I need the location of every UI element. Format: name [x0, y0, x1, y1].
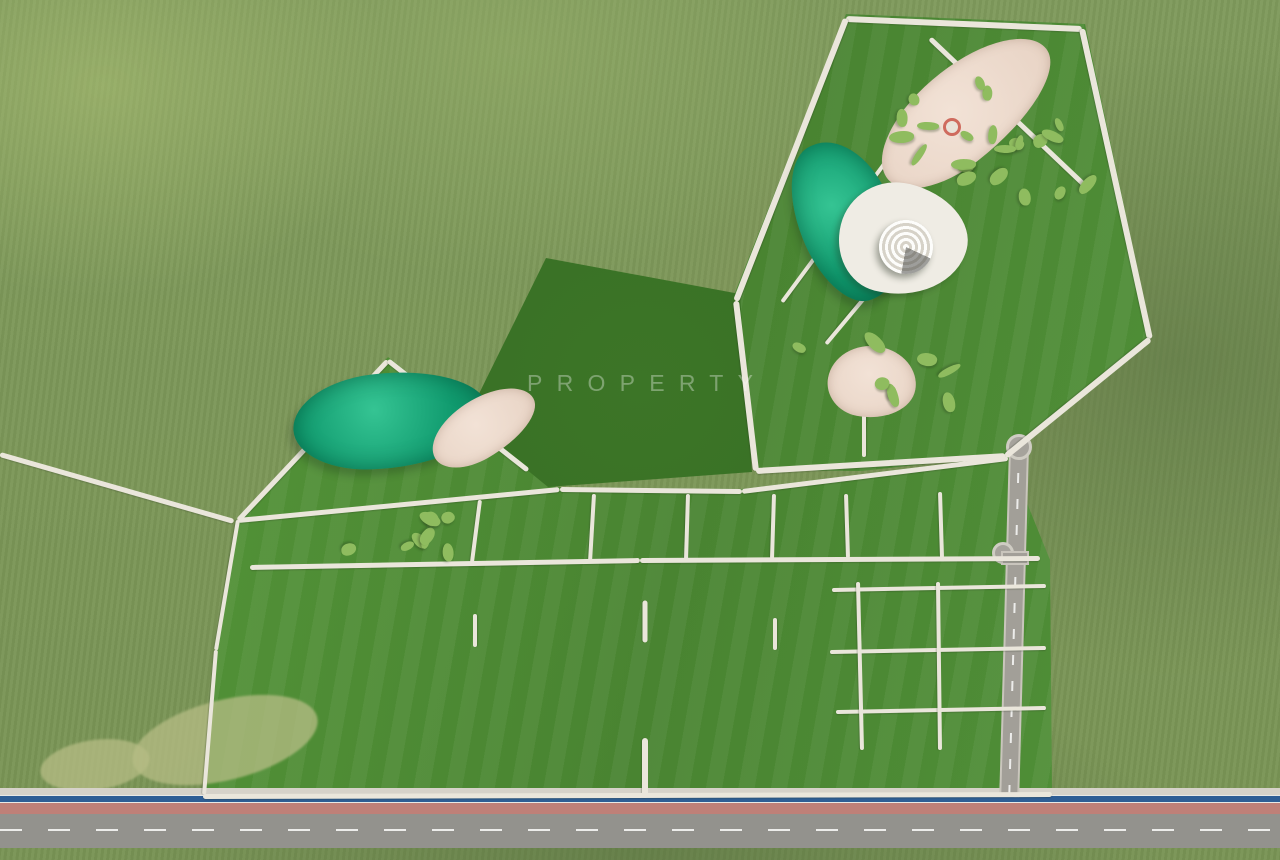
aerial-masterplan-render: PROPERTY: [0, 0, 1280, 860]
walkway: [0, 452, 235, 524]
walkway: [773, 618, 777, 650]
play-equipment: [909, 93, 920, 105]
walkway: [643, 601, 648, 643]
main-road: [0, 814, 1280, 848]
walkway: [642, 738, 648, 798]
amphitheater-stage: [879, 220, 933, 274]
walk-lane: [0, 803, 1280, 814]
play-equipment: [442, 543, 453, 562]
carousel: [943, 118, 961, 136]
road-centerline: [0, 829, 1280, 831]
amphitheater: [879, 220, 933, 274]
walkway: [473, 614, 477, 647]
play-equipment: [896, 109, 908, 127]
road-centerline: [1008, 447, 1020, 795]
